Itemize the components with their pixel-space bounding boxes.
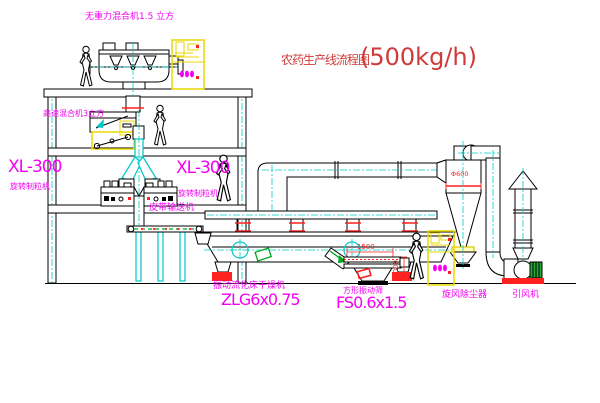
label-cyclone: 旋风除尘器 (442, 291, 487, 300)
dryer-foot-left (212, 272, 232, 281)
floor-slab-1 (44, 89, 252, 97)
induced-draft-fan (502, 259, 544, 284)
floor-slab-2 (48, 148, 246, 156)
label-sieve-model: FS0.6x1.5 (336, 295, 406, 312)
label-granulator-right-name: 旋转制粒机 (178, 190, 218, 198)
feed-pipe (126, 96, 140, 112)
cyclone-inlet (437, 160, 446, 183)
dim-cyclone: Φ600 (451, 171, 469, 178)
label-belt-conveyor: 皮带输送机 (149, 204, 194, 213)
mixer-discharge (123, 82, 145, 89)
sieve-drive (400, 258, 409, 267)
dim-sieve-width: 600 (391, 260, 398, 273)
page-title: 农药生产线流程图 (281, 54, 369, 67)
cad-flow-diagram: 农药生产线流程图 (500kg/h) 无重力混合机1.5 立方 高速混合机3立方… (0, 0, 600, 403)
label-granulator-left-model: XL-300 (8, 159, 61, 177)
dryer-leg-left (215, 262, 231, 272)
label-fan: 引风机 (512, 291, 539, 300)
worker-figure-2 (154, 105, 166, 145)
label-granulator-left-name: 旋转制粒机 (10, 183, 50, 191)
label-gravity-mixer: 无重力混合机1.5 立方 (85, 13, 174, 22)
exhaust-duct (258, 160, 446, 211)
page-title-capacity: (500kg/h) (360, 45, 477, 70)
label-granulator-right-model: XL-300 (176, 160, 229, 178)
fan-base (502, 278, 544, 284)
dryer-inlet-hopper (195, 233, 211, 244)
label-dryer-model: ZLG6x0.75 (221, 292, 300, 309)
gravity-free-mixer (84, 43, 184, 89)
exhaust-stubs (235, 219, 418, 232)
label-high-speed-mixer: 高速混合机3立方 (43, 110, 104, 118)
fan-housing (514, 261, 532, 279)
indicator-dot (196, 45, 199, 48)
dim-sieve-length: 1500 (357, 244, 375, 251)
